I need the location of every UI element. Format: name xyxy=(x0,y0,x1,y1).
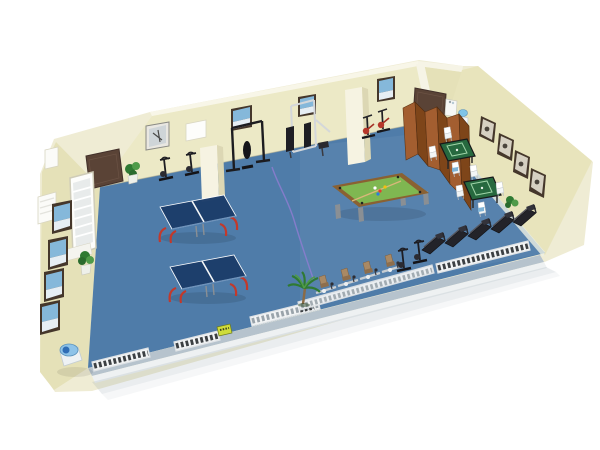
room-scene xyxy=(0,0,600,450)
wall-picture xyxy=(377,76,395,102)
room-3d-render xyxy=(0,0,600,450)
exterior-window-panel xyxy=(45,147,58,169)
wall-picture xyxy=(40,300,60,335)
whiteboard xyxy=(186,120,206,141)
wall-picture xyxy=(44,268,64,302)
window xyxy=(70,172,96,256)
wall-picture xyxy=(146,122,169,150)
wall-picture xyxy=(52,200,72,234)
cabinet xyxy=(445,99,457,117)
wall-picture xyxy=(48,236,68,270)
column xyxy=(200,145,225,202)
